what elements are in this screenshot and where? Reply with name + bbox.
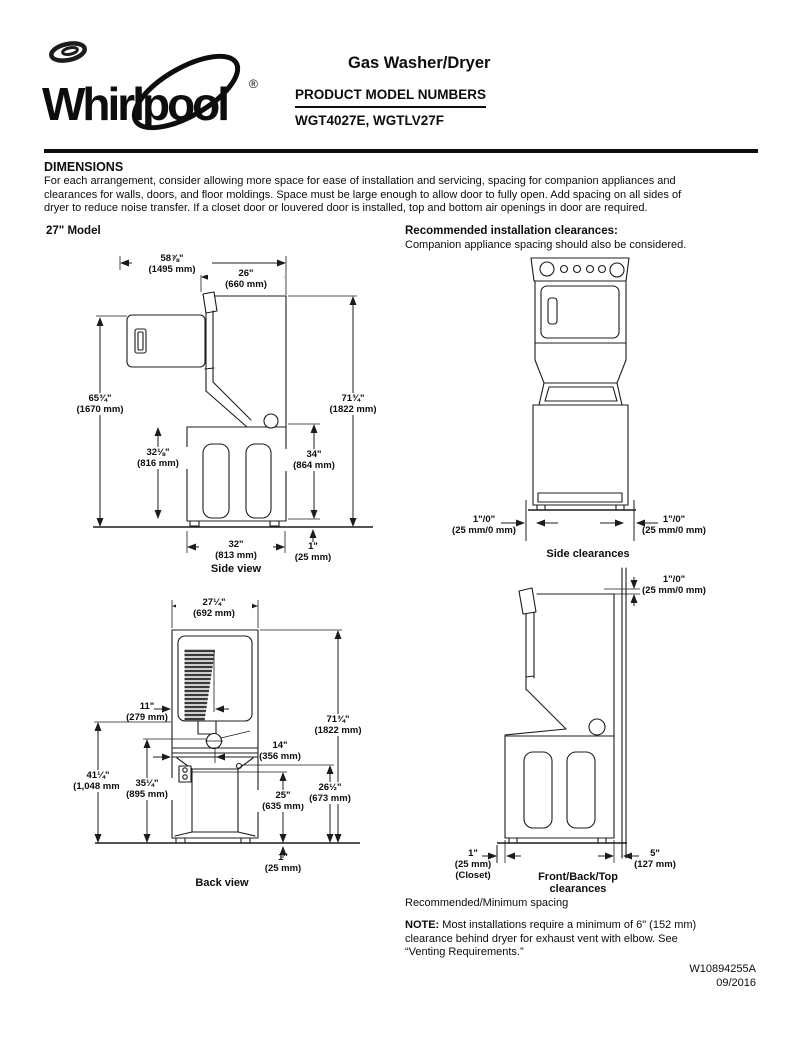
mm-value: (1822 mm) <box>315 404 391 415</box>
side-view-drawing <box>60 250 380 580</box>
dim-side-height-total: 71¾" (1822 mm) <box>315 393 391 415</box>
dim-side-washer-left: 32⅛" (816 mm) <box>120 447 196 469</box>
in-value: 27¼" <box>176 597 252 608</box>
in-value: 34" <box>277 449 351 460</box>
page-title: Gas Washer/Dryer <box>348 54 490 73</box>
vent-louvers <box>185 651 216 719</box>
in-value: 26½" <box>296 782 364 793</box>
in-value: 1"/0" <box>442 514 526 525</box>
intro-paragraph: For each arrangement, consider allowing … <box>44 175 681 216</box>
fbt-dimension-lines <box>482 577 640 863</box>
caption-line-1: Front/Back/Top <box>528 871 628 883</box>
dim-clearance-right: 1"/0" (25 mm/0 mm) <box>636 514 712 536</box>
left-column-heading: 27" Model <box>46 225 101 237</box>
in-value: 32⅛" <box>120 447 196 458</box>
dim-back-hookup: 41¼" (1,048 mm) <box>70 770 126 792</box>
whirlpool-logo: Whirlpool ® <box>36 30 271 145</box>
in-value: 1"/0" <box>636 574 712 585</box>
dim-side-base-depth: 32" (813 mm) <box>199 539 273 561</box>
dim-fbt-back: 5" (127 mm) <box>632 848 678 870</box>
dim-side-washer-right: 34" (864 mm) <box>277 449 351 471</box>
mm-value: (127 mm) <box>632 859 678 870</box>
mm-value: (356 mm) <box>245 751 315 762</box>
side-clearances-caption: Side clearances <box>540 548 636 560</box>
mm-value: (1,048 mm) <box>70 781 126 792</box>
mm-value: (660 mm) <box>208 279 284 290</box>
back-view-unit-art <box>95 630 360 843</box>
mm-value: (816 mm) <box>120 458 196 469</box>
dim-back-exhaust-height: 35¼" (895 mm) <box>119 778 175 800</box>
note-line-1: NOTE: Most installations require a minim… <box>405 919 696 933</box>
subtitle-product-model-numbers: PRODUCT MODEL NUMBERS <box>295 87 486 108</box>
closet-note: (Closet) <box>448 870 498 881</box>
mm-value: (1670 mm) <box>62 404 138 415</box>
in-value: 65¾" <box>62 393 138 404</box>
dim-back-feet: 1" (25 mm) <box>254 852 312 874</box>
note-paragraph: NOTE: Most installations require a minim… <box>405 919 696 960</box>
mm-value: (279 mm) <box>122 712 172 723</box>
doc-date: 09/2016 <box>556 977 756 991</box>
note-text: Most installations require a minimum of … <box>439 919 696 931</box>
mm-value: (1495 mm) <box>132 264 212 275</box>
right-column-heading: Recommended installation clearances: <box>405 225 618 237</box>
mm-value: (25 mm) <box>448 859 498 870</box>
dimensions-heading: DIMENSIONS <box>44 160 123 174</box>
mm-value: (25 mm/0 mm) <box>636 525 712 536</box>
note-label: NOTE: <box>405 919 439 931</box>
dim-back-height-total: 71¾" (1822 mm) <box>300 714 376 736</box>
dim-fbt-top: 1"/0" (25 mm/0 mm) <box>636 574 712 596</box>
caption-line-2: clearances <box>528 883 628 895</box>
in-value: 41¼" <box>70 770 126 781</box>
back-view-caption: Back view <box>182 877 262 889</box>
mm-value: (692 mm) <box>176 608 252 619</box>
dim-back-vent: 11" (279 mm) <box>122 701 172 723</box>
in-value: 32" <box>199 539 273 550</box>
dim-back-inlet: 26½" (673 mm) <box>296 782 364 804</box>
in-value: 1" <box>254 852 312 863</box>
intro-line-3: dryer to reduce noise transfer. If a clo… <box>44 202 681 216</box>
in-value: 35¼" <box>119 778 175 789</box>
wall-lines <box>622 568 626 858</box>
model-numbers: WGT4027E, WGTLV27F <box>295 113 444 128</box>
fbt-unit-art <box>497 588 627 843</box>
registered-mark: ® <box>249 77 258 91</box>
dim-back-width: 27¼" (692 mm) <box>176 597 252 619</box>
in-value: 11" <box>122 701 172 712</box>
in-value: 1" <box>284 541 342 552</box>
in-value: 71¾" <box>315 393 391 404</box>
spacing-note: Recommended/Minimum spacing <box>405 897 568 911</box>
whirlpool-swirl-icon <box>50 41 87 64</box>
in-value: 1"/0" <box>636 514 712 525</box>
mm-value: (895 mm) <box>119 789 175 800</box>
dim-fbt-front: 1" (25 mm) (Closet) <box>448 848 498 881</box>
header-divider <box>44 149 758 153</box>
dim-back-exhaust: 14" (356 mm) <box>245 740 315 762</box>
in-value: 14" <box>245 740 315 751</box>
mm-value: (813 mm) <box>199 550 273 561</box>
intro-line-2: clearances for walls, doors, and floor m… <box>44 189 681 203</box>
in-value: 5" <box>632 848 678 859</box>
mm-value: (1822 mm) <box>300 725 376 736</box>
doc-number: W10894255A <box>556 963 756 977</box>
intro-line-1: For each arrangement, consider allowing … <box>44 175 681 189</box>
fbt-clearances-caption: Front/Back/Top clearances <box>528 871 628 895</box>
back-view-drawing <box>60 595 380 895</box>
front-view-unit-art <box>528 258 636 510</box>
mm-value: (25 mm) <box>254 863 312 874</box>
in-value: 1" <box>448 848 498 859</box>
brand-wordmark: Whirlpool <box>42 78 227 130</box>
mm-value: (25 mm/0 mm) <box>636 585 712 596</box>
note-line-3: “Venting Requirements.” <box>405 946 696 960</box>
mm-value: (25 mm) <box>284 552 342 563</box>
mm-value: (864 mm) <box>277 460 351 471</box>
mm-value: (673 mm) <box>296 793 364 804</box>
document-footer: W10894255A 09/2016 <box>556 963 756 990</box>
dim-clearance-left: 1"/0" (25 mm/0 mm) <box>442 514 526 536</box>
dim-side-depth-total: 58⅞" (1495 mm) <box>132 253 212 275</box>
note-line-2: clearance behind dryer for exhaust vent … <box>405 933 696 947</box>
dim-side-feet: 1" (25 mm) <box>284 541 342 563</box>
in-value: 71¾" <box>300 714 376 725</box>
mm-value: (25 mm/0 mm) <box>442 525 526 536</box>
spec-sheet-page: Whirlpool ® Gas Washer/Dryer PRODUCT MOD… <box>0 0 802 1037</box>
side-view-caption: Side view <box>193 563 279 575</box>
in-value: 58⅞" <box>132 253 212 264</box>
dim-side-height-door: 65¾" (1670 mm) <box>62 393 138 415</box>
dim-side-depth-top: 26" (660 mm) <box>208 268 284 290</box>
in-value: 26" <box>208 268 284 279</box>
